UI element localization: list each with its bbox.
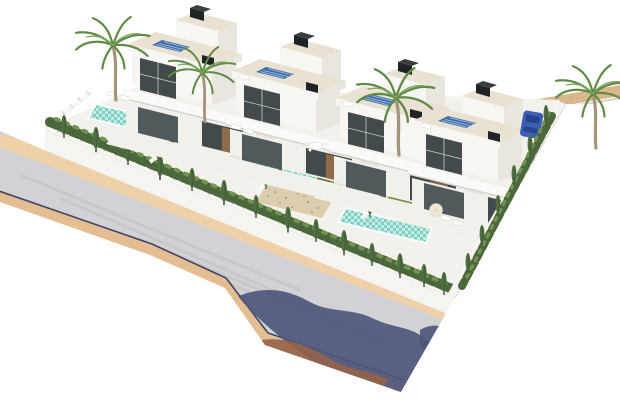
render-scene	[0, 0, 620, 406]
parasol	[430, 204, 443, 217]
aerial-render-canvas	[0, 0, 620, 406]
